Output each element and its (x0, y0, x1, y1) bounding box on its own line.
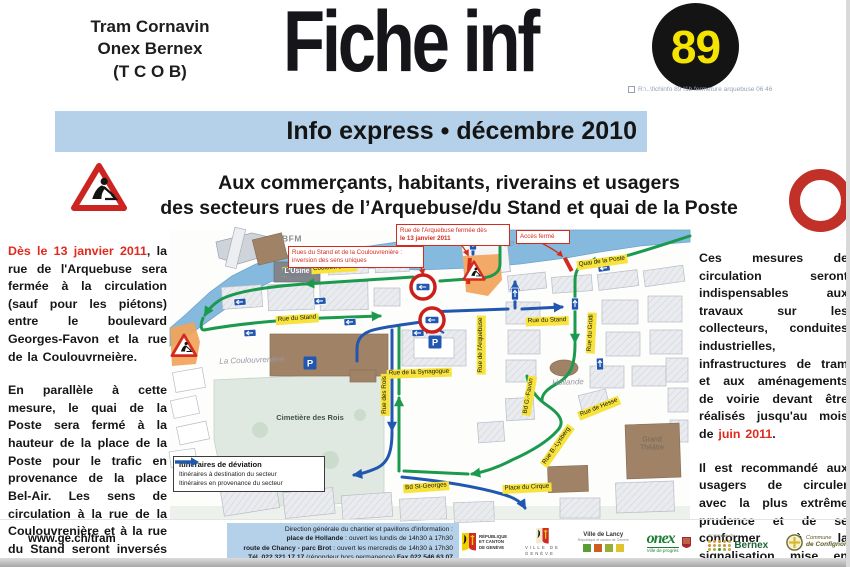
logo-bernex: Commune de Bernex (708, 533, 768, 550)
contact-line1: Direction générale du chantier et pavill… (233, 525, 453, 534)
org-line1: Tram Cornavin (55, 16, 245, 38)
legend-item: Itinéraires en provenance du secteur (179, 480, 319, 487)
paragraph: Dès le 13 janvier 2011, la rue de l'Arqu… (8, 243, 167, 366)
info-express-banner: Info express • décembre 2010 (55, 111, 647, 152)
contact-line3: route de Chancy - parc Brot : ouvert les… (233, 544, 453, 553)
ville-de-geneve-arms-icon (536, 528, 549, 544)
onex-shield-icon (682, 537, 691, 548)
headline-line1: Aux commerçants, habitants, riverains et… (135, 171, 763, 196)
headline-line2: des secteurs rues de l’Arquebuse/du Stan… (135, 196, 763, 221)
paragraph: Ces mesures de circulation seront indisp… (699, 250, 848, 444)
partner-logos: RÉPUBLIQUEET CANTONDE GENÈVE VILLE DEGEN… (462, 522, 848, 562)
logo-onex: onex Ville de progrès (647, 531, 691, 553)
lancy-squares-icon (583, 544, 624, 552)
legend-item: Itinéraires à destination du secteur (179, 471, 319, 478)
roadworks-warning-icon (69, 163, 129, 219)
logo-confignon: Communede Confignon (786, 534, 848, 551)
contact-line2: place de Hollande : ouvert les lundis de… (233, 534, 453, 543)
no-entry-sign (420, 308, 444, 332)
deviation-map: P (170, 230, 690, 520)
logo-ville-de-lancy: Ville de Lancy République et canton de G… (578, 532, 629, 551)
page-right-edge (846, 0, 850, 567)
issue-number: 89 (671, 20, 720, 74)
organization-block: Tram Cornavin Onex Bernex (T C O B) (55, 16, 245, 83)
org-line2: Onex Bernex (55, 38, 245, 60)
bernex-dots-icon (708, 540, 732, 551)
banner-title: Info express • décembre 2010 (286, 117, 637, 145)
file-ref-icon (628, 86, 635, 93)
west-blocks (169, 368, 210, 468)
page-bottom-edge (0, 558, 850, 567)
geneva-coat-of-arms-icon (462, 533, 476, 551)
legend-arrow-icon (174, 457, 200, 467)
issue-number-badge: 89 (652, 3, 739, 90)
headline: Aux commerçants, habitants, riverains et… (135, 171, 763, 222)
flyer-page: Tram Cornavin Onex Bernex (T C O B) Fich… (0, 0, 850, 567)
logo-ville-de-geneve: VILLE DEGENÈVE (525, 528, 560, 556)
legend-title: Itinéraires de déviation (179, 460, 319, 469)
no-traffic-sign-icon (789, 169, 850, 232)
date-emphasis: Dès le 13 janvier 2011 (8, 244, 147, 258)
org-line3: (T C O B) (55, 61, 245, 83)
logo-republique-geneve: RÉPUBLIQUEET CANTONDE GENÈVE (462, 533, 507, 551)
footer-divider (0, 519, 850, 520)
file-reference: R:\..\fichinfo 89 I1b fermeture arquebus… (628, 86, 772, 93)
map-legend: Itinéraires de déviation Itinéraires à d… (173, 456, 325, 492)
confignon-crest-icon (786, 534, 803, 551)
website-url: www.ge.ch/tram (28, 533, 116, 545)
date-emphasis: juin 2011 (718, 427, 772, 441)
legend-label: Itinéraires en provenance du secteur (179, 480, 283, 487)
legend-label: Itinéraires à destination du secteur (179, 471, 277, 478)
masthead-title: Fiche inf (283, 0, 537, 94)
no-entry-sign (411, 275, 435, 299)
